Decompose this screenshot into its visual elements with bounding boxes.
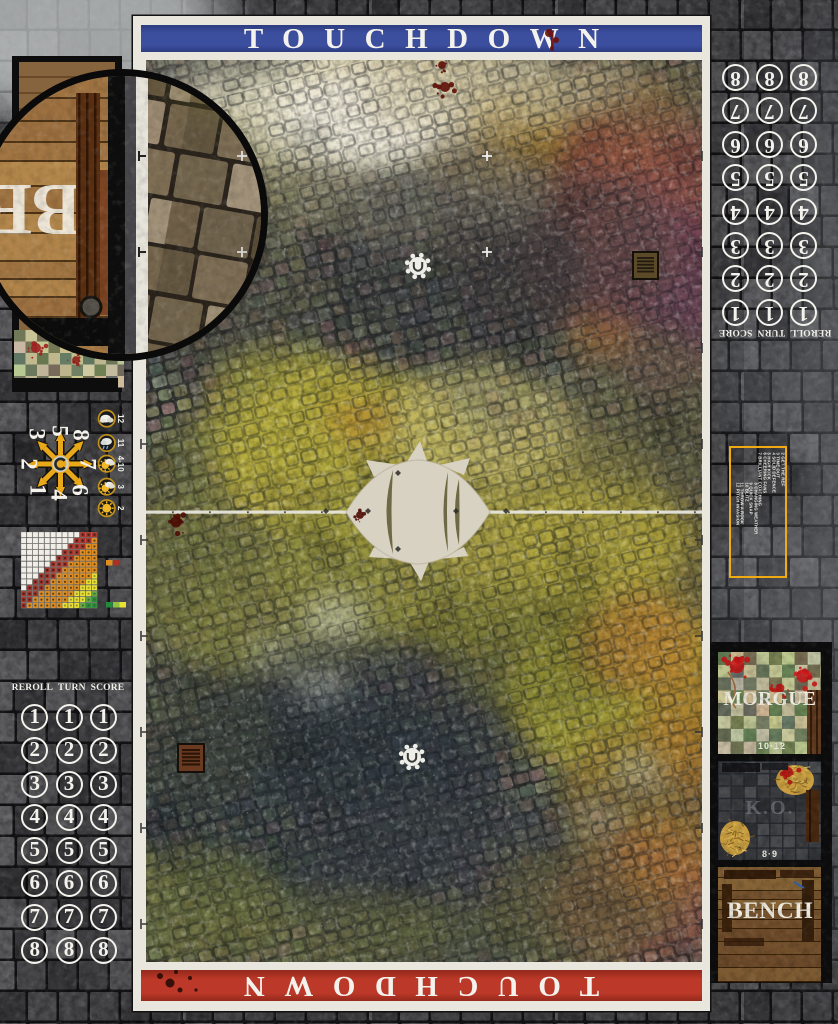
svg-text:4-10: 4-10 bbox=[116, 456, 125, 473]
svg-text:11: 11 bbox=[116, 439, 125, 448]
svg-text:8: 8 bbox=[69, 429, 94, 441]
svg-text:2: 2 bbox=[17, 458, 42, 470]
svg-text:3: 3 bbox=[25, 428, 50, 440]
svg-text:2: 2 bbox=[116, 506, 125, 511]
svg-text:6: 6 bbox=[68, 484, 93, 496]
svg-text:12: 12 bbox=[116, 414, 125, 423]
svg-text:3: 3 bbox=[116, 484, 125, 489]
